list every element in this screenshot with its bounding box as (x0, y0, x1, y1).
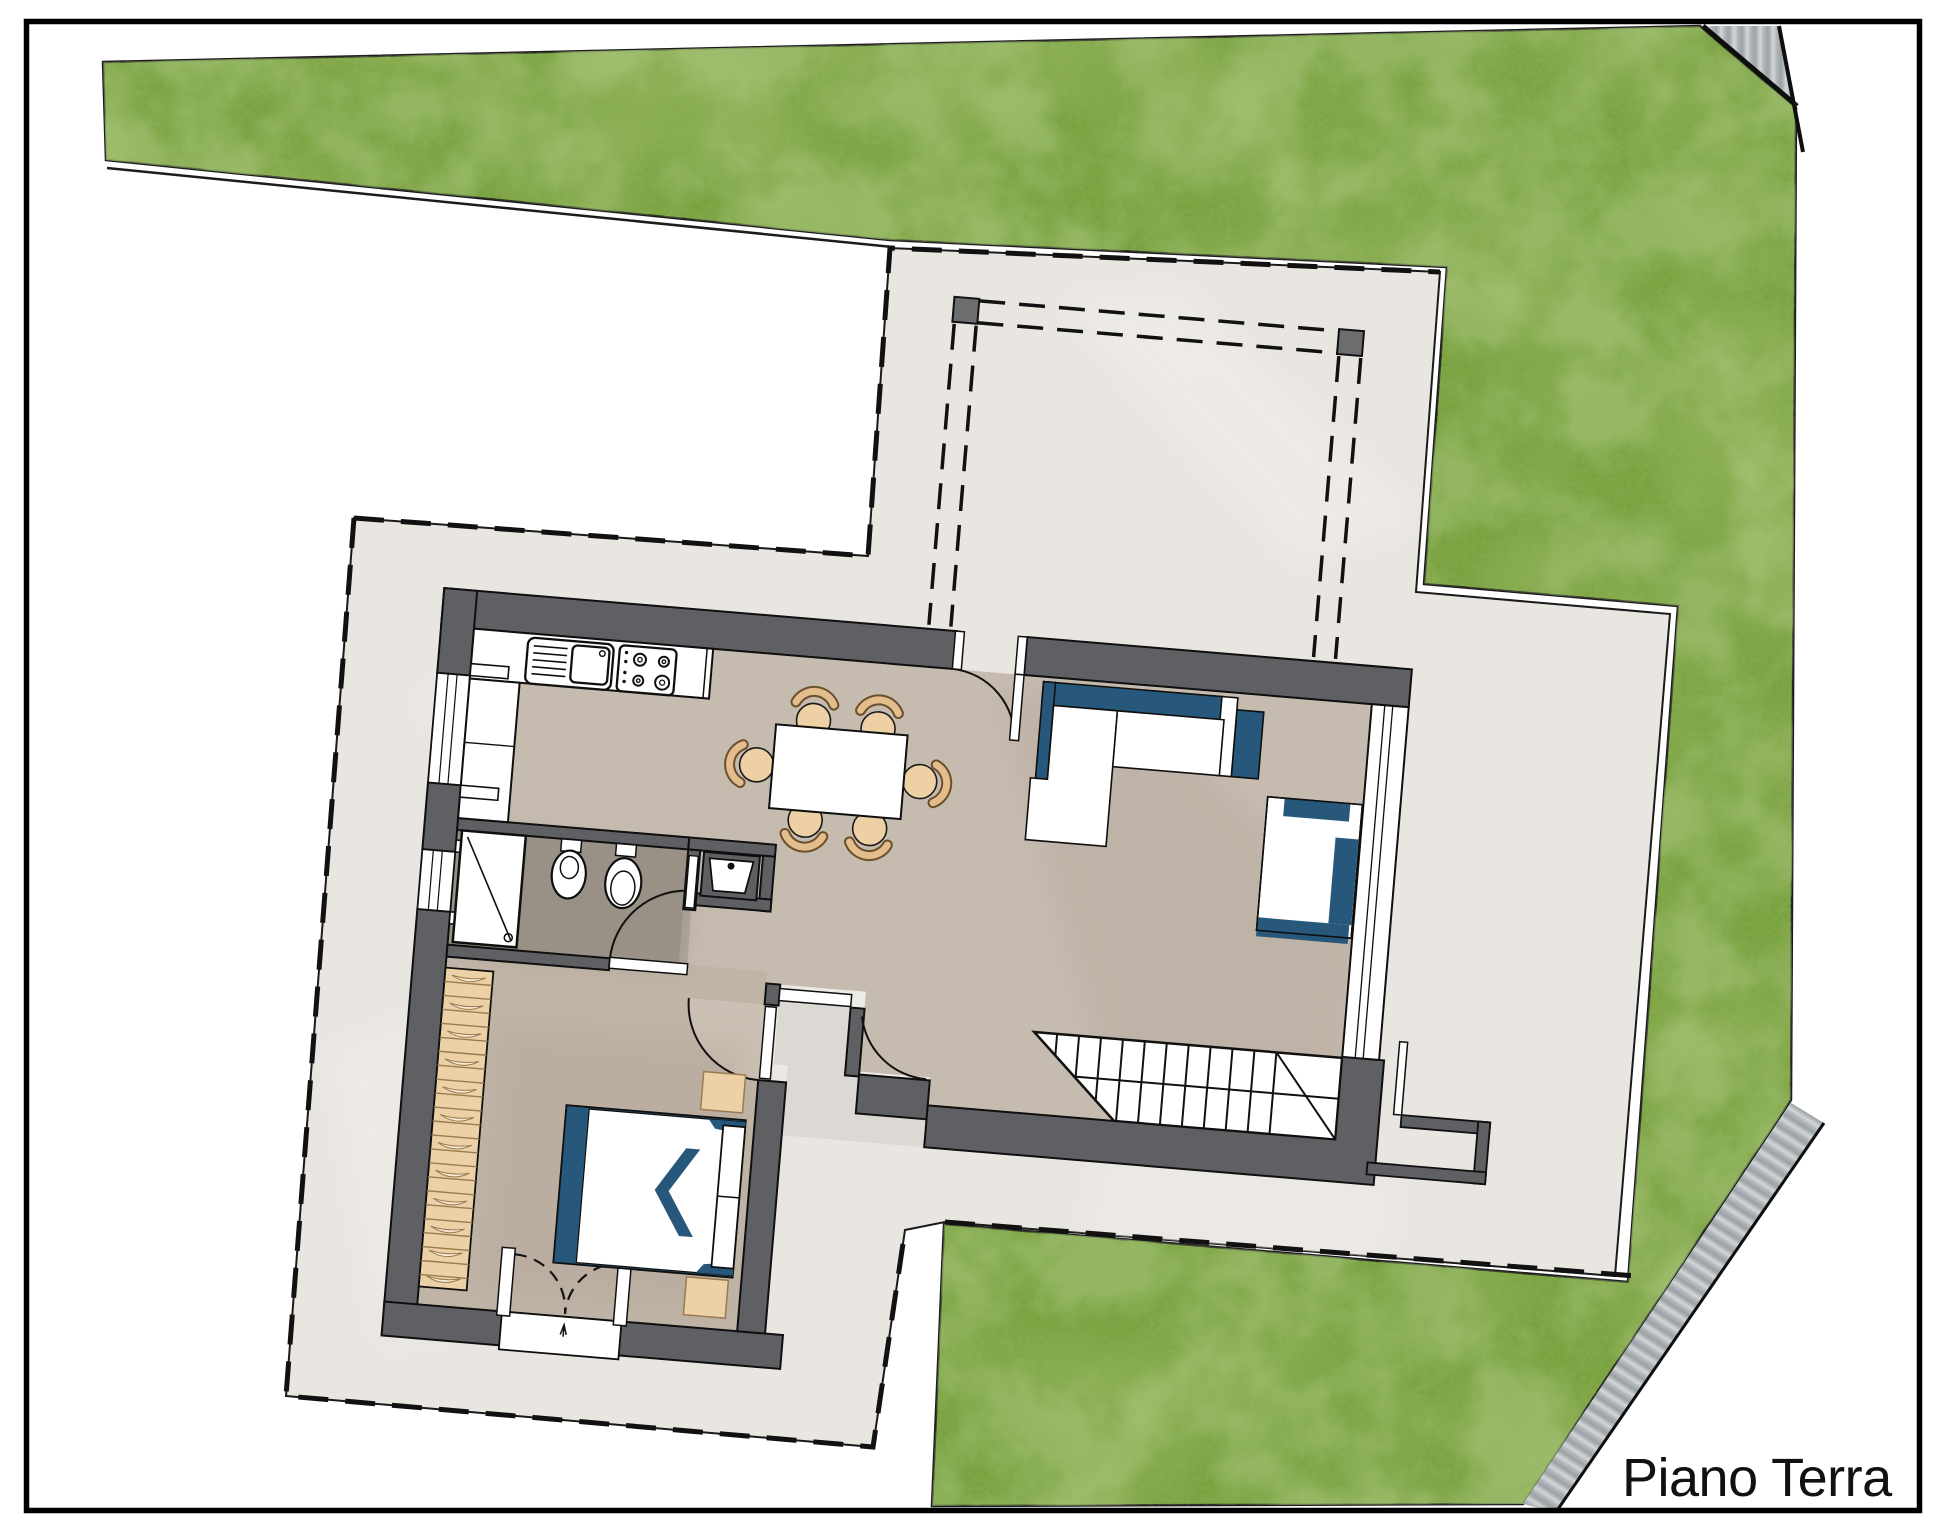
svg-text:Piano Terra: Piano Terra (1622, 1448, 1893, 1508)
